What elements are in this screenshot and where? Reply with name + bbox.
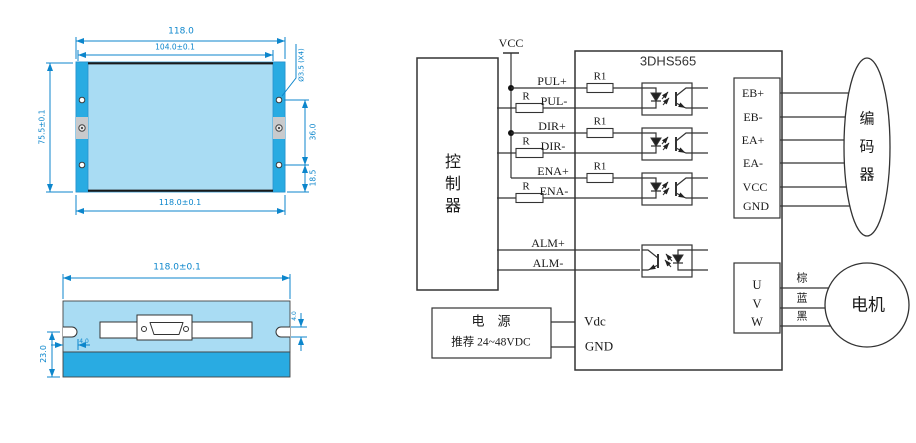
driver-title: 3DHS565 — [640, 55, 696, 68]
diagram-graphics — [0, 0, 916, 443]
wire-color-label: 蓝 — [797, 294, 808, 305]
mech-side-view — [47, 274, 307, 377]
encoder-label-char: 编 — [859, 113, 874, 128]
signal-label-pul-minus: PUL- — [541, 95, 568, 107]
resistor-r-pul — [516, 104, 543, 113]
resistor-r1-ena — [587, 174, 613, 183]
left-mount-notch — [63, 327, 77, 337]
encoder-label-char: 器 — [859, 169, 874, 184]
dim-side-height: 23.0 — [40, 345, 48, 363]
encoder-terminal-label: VCC — [743, 181, 768, 193]
dim-side-width: 118.0±0.1 — [153, 264, 201, 273]
right-mount-notch — [276, 327, 290, 337]
motor-label: 电机 — [851, 297, 885, 314]
dim-notch-height: 4.0 — [292, 311, 298, 321]
dsub-screw-left — [142, 327, 147, 332]
resistor-r-label: R — [522, 92, 529, 103]
dim-right-lower: 18.5 — [309, 170, 317, 187]
vdc-terminal-label: Vdc — [584, 315, 606, 328]
vcc-rail-label: VCC — [499, 37, 524, 49]
encoder-label-char: 码 — [859, 141, 874, 156]
power-wires — [551, 322, 575, 347]
optocoupler-dir-icon — [642, 128, 692, 160]
dim-notch-depth: 4.0 — [79, 339, 89, 345]
dim-hole-note: Ø3.5 (X4) — [299, 48, 306, 82]
resistor-r1-pul — [587, 84, 613, 93]
signal-label-alm-minus: ALM- — [533, 257, 564, 269]
wire-color-label: 棕 — [797, 274, 808, 285]
optocoupler-ena-icon — [642, 173, 692, 205]
encoder-terminal-label: EA+ — [742, 134, 765, 146]
controller-label-char: 器 — [445, 199, 461, 215]
resistor-r-dir — [516, 149, 543, 158]
dim-bottom-width: 118.0±0.1 — [159, 199, 201, 207]
dsub-connector-shell — [150, 323, 183, 335]
resistor-r-label: R — [522, 182, 529, 193]
dim-right-upper: 36.0 — [309, 124, 317, 141]
controller-label-char: 控 — [445, 155, 461, 171]
figure-canvas: 118.0 104.0±0.1 75.5±0.1 Ø3.5 (X4) 36.0 … — [0, 0, 916, 443]
signal-label-alm-plus: ALM+ — [531, 237, 564, 249]
dsub-screw-right — [184, 327, 189, 332]
resistor-r1-label: R1 — [594, 162, 607, 173]
encoder-terminal-label: EA- — [743, 157, 763, 169]
vcc-rail — [503, 53, 519, 178]
resistor-r1-dir — [587, 129, 613, 138]
signal-label-dir-plus: DIR+ — [538, 120, 565, 132]
dim-top-inner-width: 104.0±0.1 — [155, 43, 195, 51]
optocoupler-alm-icon — [642, 245, 692, 277]
power-name-label: 电 源 — [471, 315, 510, 328]
driver-body-side-lower — [63, 352, 290, 377]
dim-top-height: 75.5±0.1 — [38, 110, 46, 145]
controller-box — [417, 58, 498, 290]
mech-top-view — [46, 37, 309, 215]
wire-color-label: 黑 — [797, 312, 808, 323]
signal-label-ena-plus: ENA+ — [537, 165, 568, 177]
power-spec-label: 推荐 24~48VDC — [451, 337, 530, 349]
encoder-terminal-label: EB+ — [742, 87, 764, 99]
resistor-r1-label: R1 — [594, 117, 607, 128]
motor-terminal-label: U — [752, 279, 761, 292]
controller-label-char: 制 — [445, 177, 461, 193]
gnd-terminal-label: GND — [585, 340, 613, 353]
signal-label-dir-minus: DIR- — [541, 140, 566, 152]
motor-terminal-label: V — [752, 298, 761, 311]
encoder-terminal-label: GND — [743, 200, 769, 212]
resistor-r-label: R — [522, 137, 529, 148]
encoder-terminal-label: EB- — [743, 111, 762, 123]
motor-terminal-label: W — [751, 316, 763, 329]
optocoupler-pul-icon — [642, 83, 692, 115]
driver-body-top-view — [76, 62, 285, 192]
signal-label-pul-plus: PUL+ — [537, 75, 566, 87]
resistor-r1-label: R1 — [594, 72, 607, 83]
dim-top-outer-width: 118.0 — [168, 28, 194, 37]
signal-label-ena-minus: ENA- — [540, 185, 569, 197]
